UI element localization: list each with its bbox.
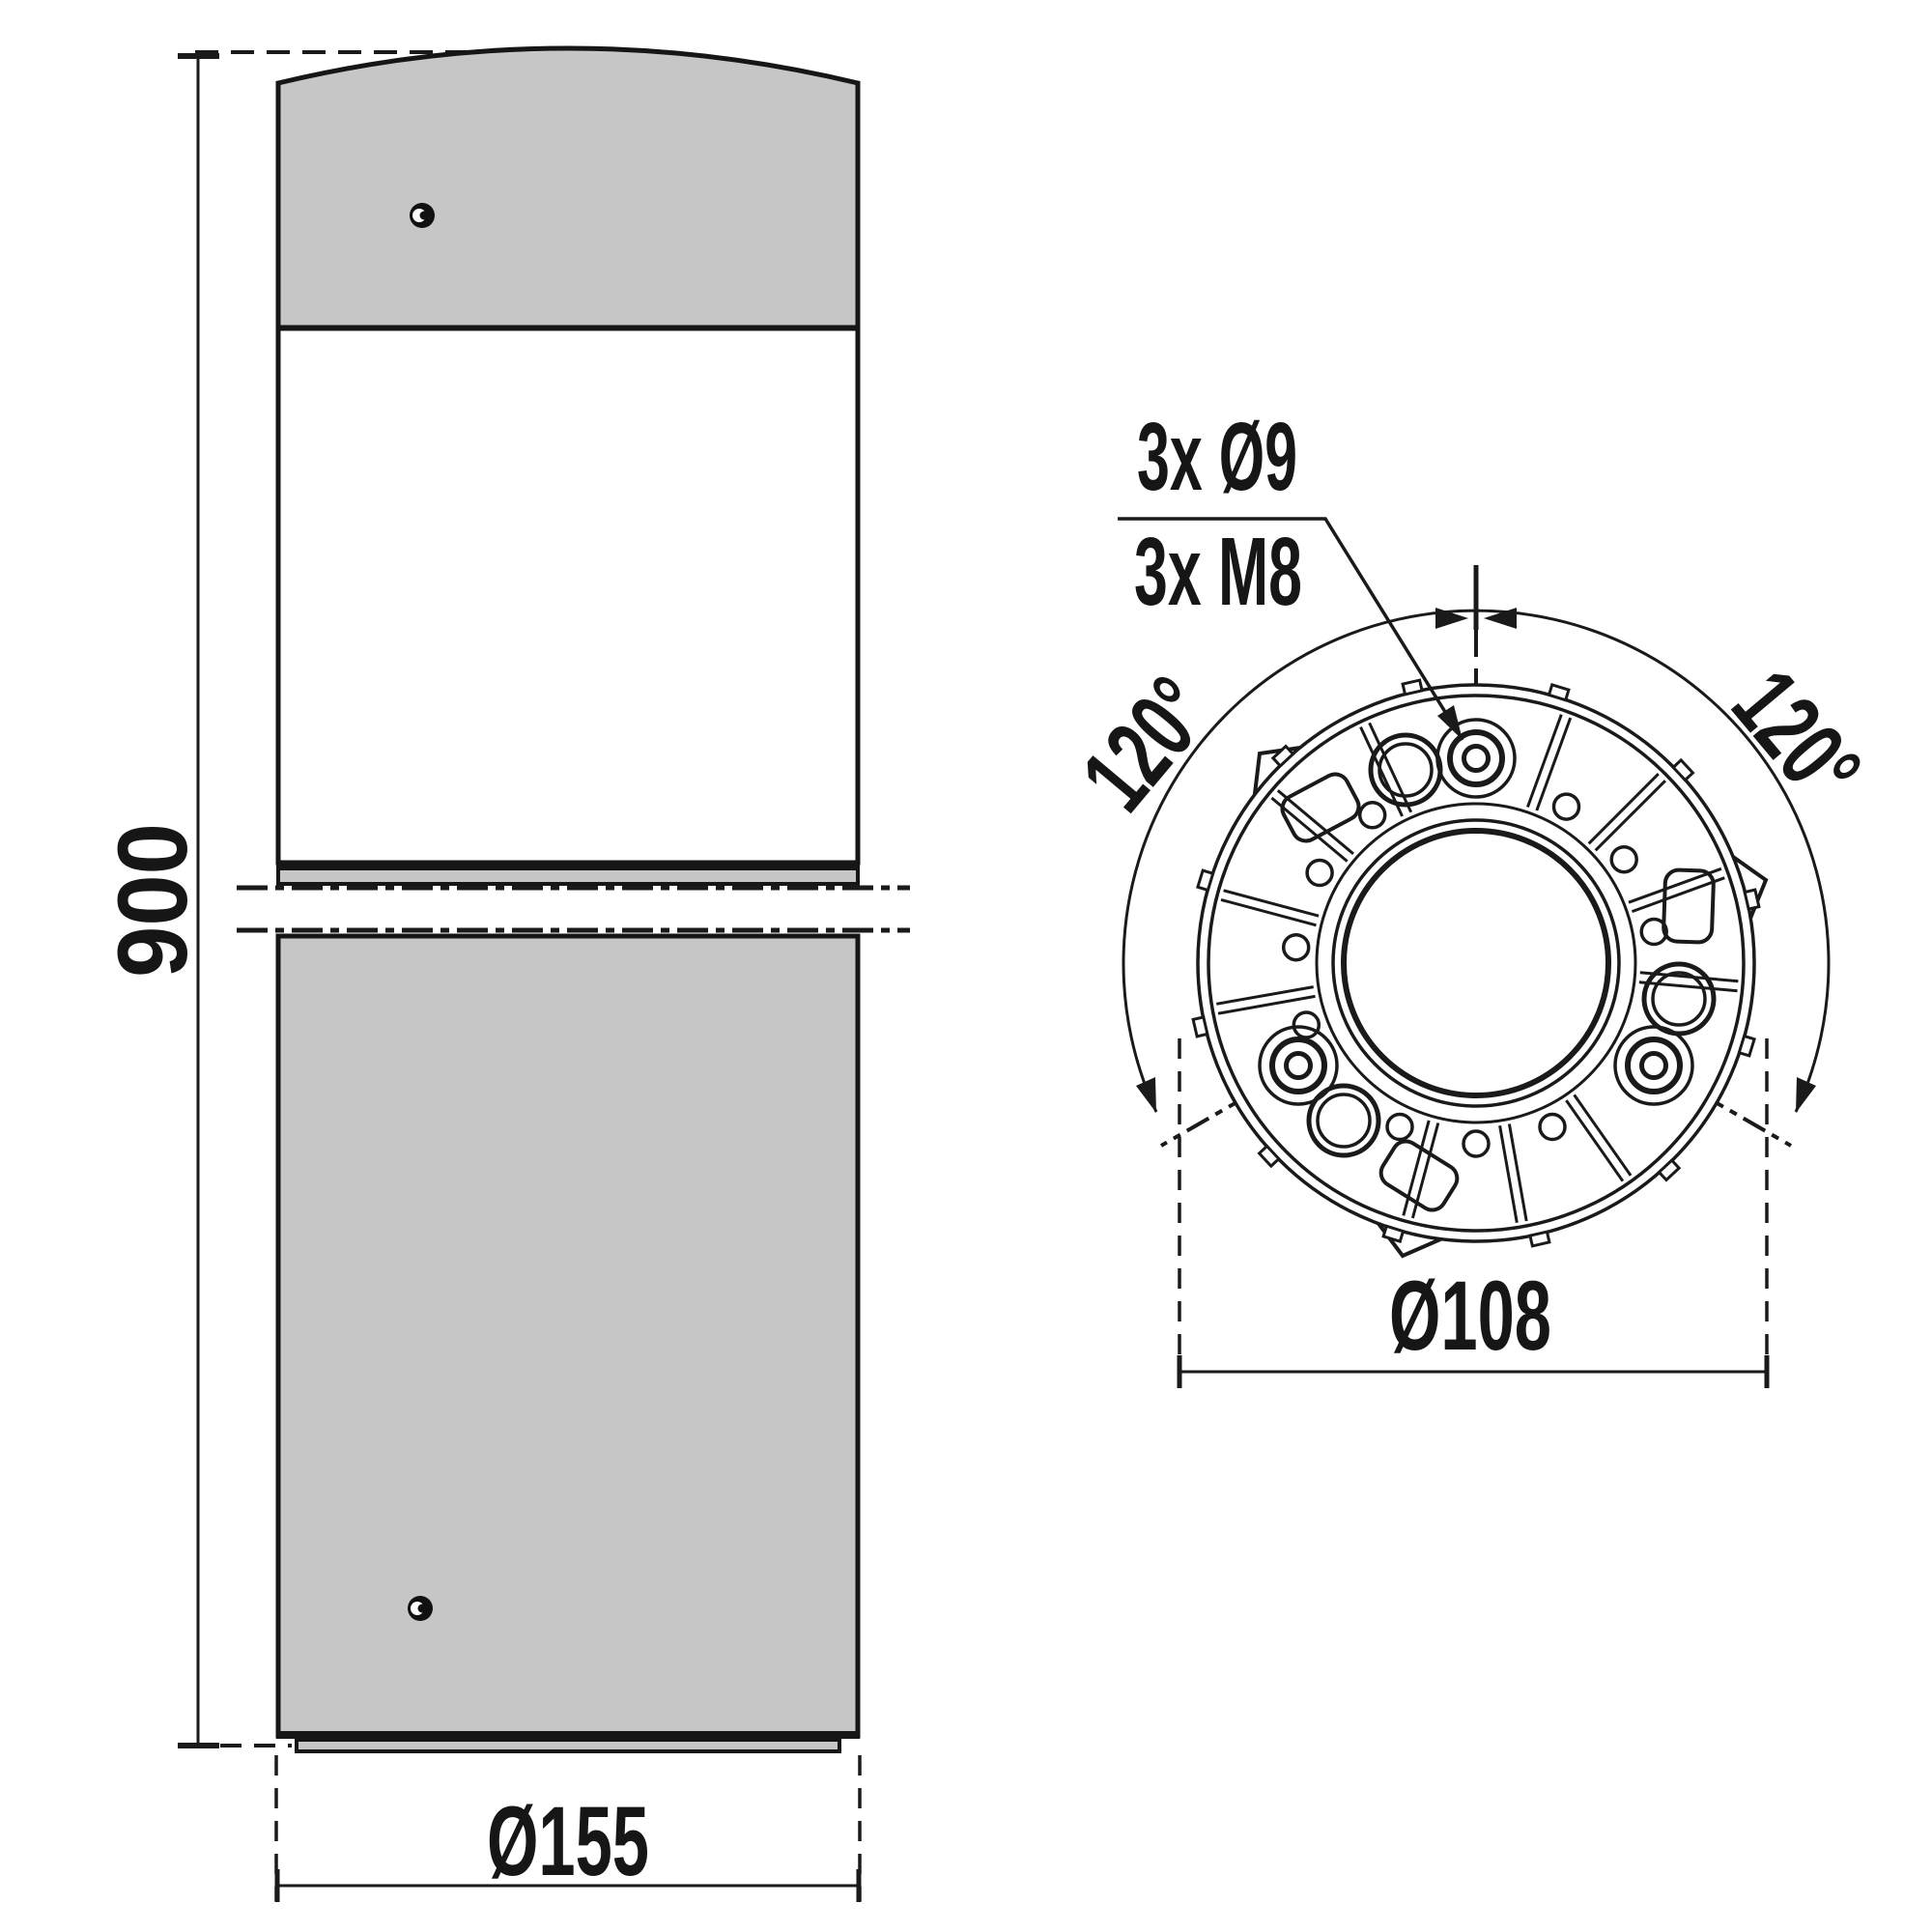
body-screw xyxy=(408,1596,433,1621)
diffuser-section xyxy=(278,328,858,863)
flange-small-hole xyxy=(1293,1012,1319,1037)
holes-clearance-label: 3x Ø9 xyxy=(1137,403,1297,511)
height-dimension-label: 900 xyxy=(98,823,208,978)
arrowhead-arc-left xyxy=(1136,1077,1156,1113)
mounting-flange-plan-view: 3x Ø9 3x M8 120° 120° Ø108 xyxy=(1062,403,1882,1394)
flange-small-hole xyxy=(1360,803,1385,828)
technical-drawing-page: 900 Ø155 xyxy=(0,0,1932,1932)
flange-edge-tab xyxy=(1745,890,1759,909)
flange-edge-tab xyxy=(1193,1017,1207,1037)
flange-small-hole xyxy=(1463,1131,1489,1156)
flange-edge-tab xyxy=(1403,680,1422,695)
flange-edge-tab xyxy=(1530,1232,1549,1246)
flange-small-hole xyxy=(1284,935,1309,960)
arrowhead-arc-right xyxy=(1796,1077,1816,1113)
bolt-circle-label: Ø108 xyxy=(1389,1261,1551,1371)
flange-small-hole xyxy=(1307,861,1332,886)
flange-small-hole xyxy=(1540,1115,1565,1140)
cap-screw xyxy=(410,203,435,228)
flange-small-hole xyxy=(1611,847,1636,872)
body-upper-sliver xyxy=(278,868,858,884)
base-plate xyxy=(297,1740,839,1751)
bollard-dimension-drawing: 900 Ø155 xyxy=(0,0,1932,1932)
body-lower-section xyxy=(278,936,858,1736)
holes-thread-label: 3x M8 xyxy=(1134,518,1302,626)
mounting-flange xyxy=(1193,680,1766,1256)
bollard-elevation-view: 900 Ø155 xyxy=(98,48,910,1902)
bollard-cap xyxy=(278,48,858,328)
base-diameter-label: Ø155 xyxy=(487,1786,649,1896)
angle-label-left: 120° xyxy=(1062,657,1232,830)
angle-label-right: 120° xyxy=(1712,650,1882,823)
flange-small-hole xyxy=(1554,794,1579,819)
flange-small-hole xyxy=(1387,1115,1412,1140)
